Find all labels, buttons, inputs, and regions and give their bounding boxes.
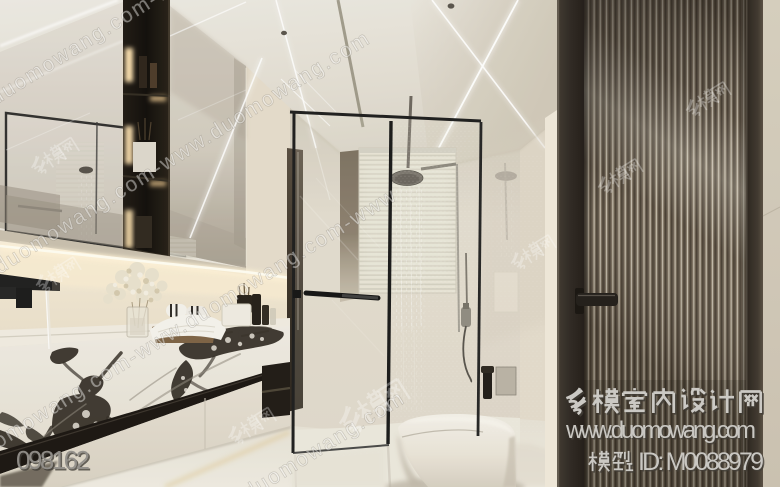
svg-text:www.duomowang.com: www.duomowang.com bbox=[565, 417, 756, 444]
svg-text:ID: M0088979: ID: M0088979 bbox=[638, 448, 764, 476]
svg-text:098162: 098162 bbox=[16, 445, 90, 475]
